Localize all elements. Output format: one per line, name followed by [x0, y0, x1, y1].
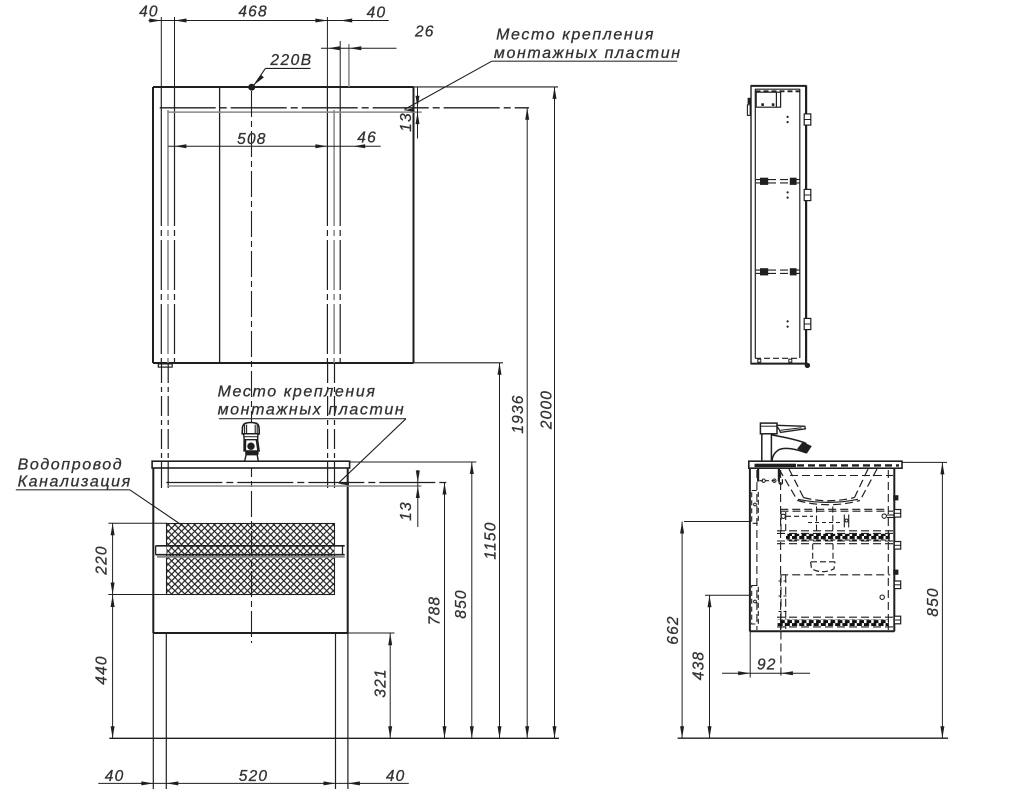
svg-text:1936: 1936	[510, 394, 527, 433]
svg-text:Место крепления: Место крепления	[218, 384, 377, 401]
svg-text:440: 440	[94, 655, 111, 684]
svg-text:40: 40	[139, 4, 159, 21]
svg-text:321: 321	[373, 668, 390, 697]
svg-text:520: 520	[239, 768, 268, 785]
svg-text:438: 438	[690, 651, 707, 680]
svg-text:46: 46	[357, 130, 377, 147]
svg-text:850: 850	[925, 587, 942, 616]
svg-text:40: 40	[367, 5, 387, 22]
svg-text:Канализация: Канализация	[18, 473, 132, 490]
svg-text:508: 508	[237, 131, 266, 148]
svg-text:Место крепления: Место крепления	[496, 27, 655, 44]
svg-text:1150: 1150	[483, 521, 500, 559]
svg-text:Водопровод: Водопровод	[18, 457, 124, 474]
svg-text:40: 40	[105, 768, 125, 785]
svg-text:788: 788	[427, 596, 444, 625]
svg-text:монтажных пластин: монтажных пластин	[218, 402, 406, 419]
svg-text:13: 13	[398, 501, 415, 521]
svg-text:92: 92	[757, 657, 777, 674]
svg-text:850: 850	[453, 589, 470, 618]
svg-text:26: 26	[414, 24, 435, 41]
svg-text:220: 220	[94, 545, 111, 575]
svg-text:220В: 220В	[269, 52, 312, 69]
svg-text:662: 662	[665, 615, 682, 644]
svg-text:40: 40	[386, 768, 406, 785]
svg-text:13: 13	[398, 112, 415, 132]
svg-text:монтажных пластин: монтажных пластин	[494, 45, 682, 62]
svg-text:2000: 2000	[539, 390, 556, 430]
svg-text:468: 468	[238, 4, 267, 21]
